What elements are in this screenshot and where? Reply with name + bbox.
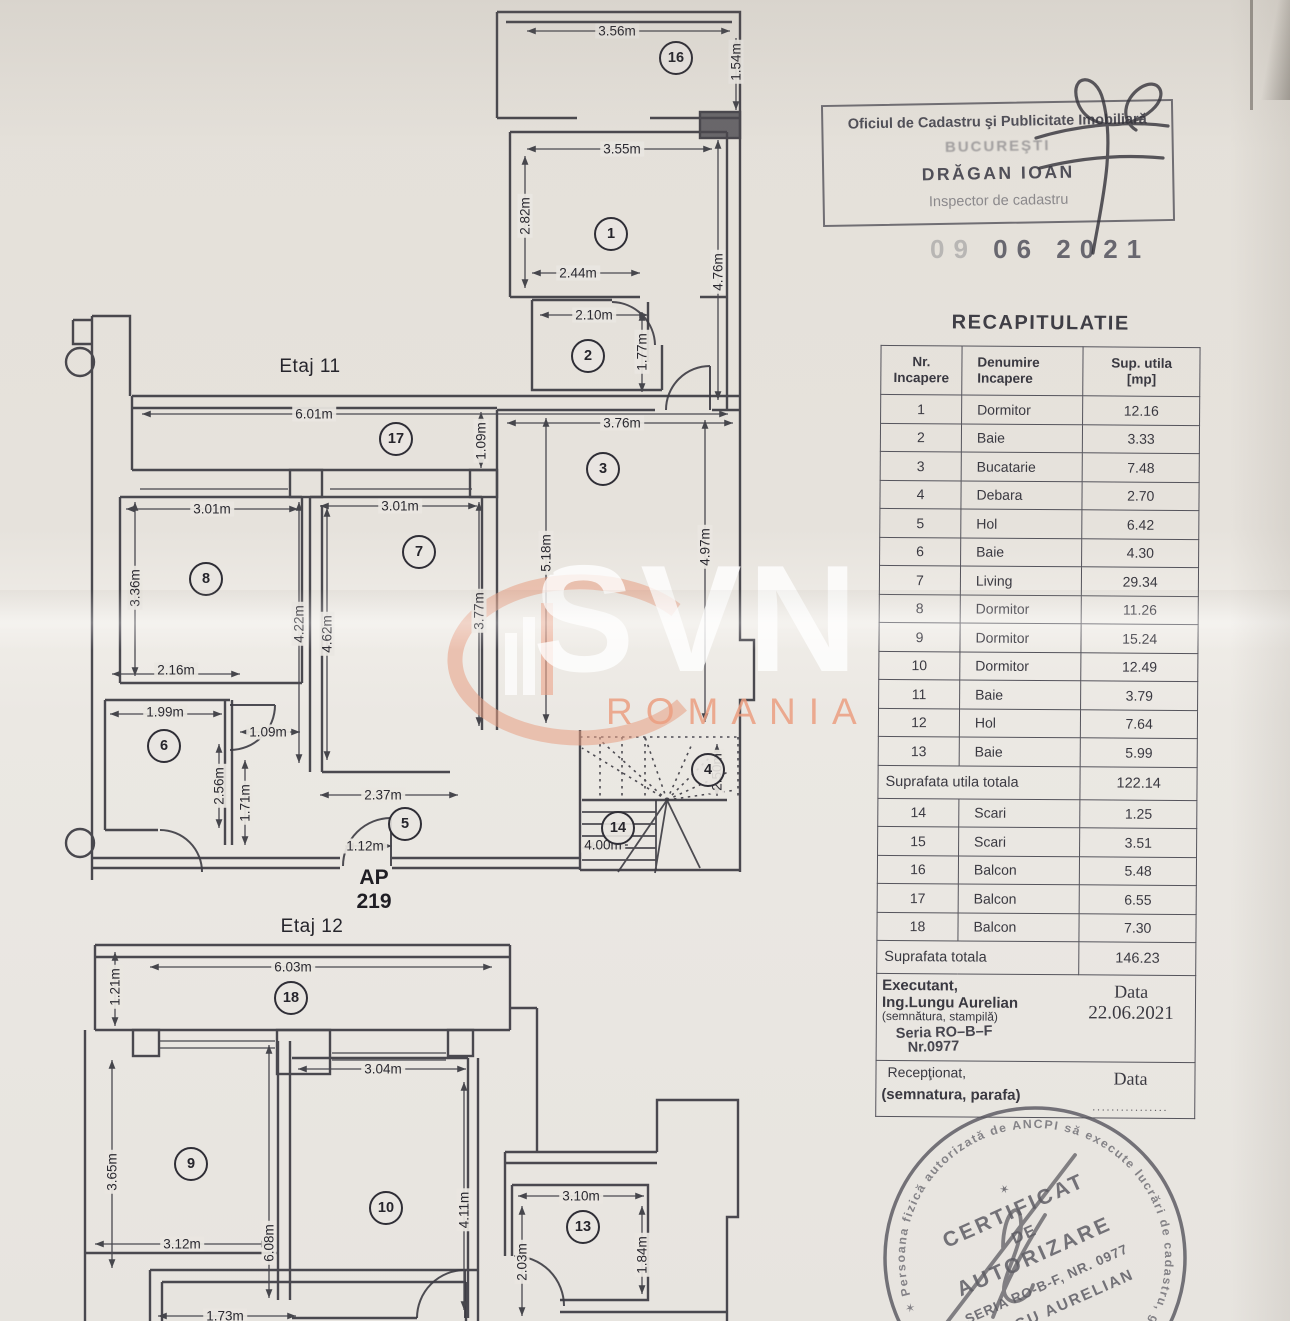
cell-area: 12.49	[1081, 652, 1198, 681]
total-row-label: Suprafata totala	[877, 940, 1080, 974]
table-row: 2Baie3.33	[880, 423, 1199, 454]
cell-nr: 12	[878, 708, 959, 737]
table-row: 4Debara2.70	[880, 480, 1199, 511]
executant-data-label: Data	[1067, 981, 1195, 1003]
dim-label: 3.65m	[105, 1150, 120, 1194]
watermark-svn-text: SVN	[533, 543, 864, 695]
table-row: 6Baie4.30	[880, 537, 1199, 568]
svn-watermark: SVN ROMANIA	[430, 555, 860, 795]
dim-label: 3.10m	[559, 1189, 603, 1204]
cell-nr: 13	[878, 736, 959, 765]
dim-label: 3.12m	[160, 1237, 204, 1252]
cell-nr: 18	[877, 912, 958, 941]
room-number: 9	[174, 1147, 208, 1181]
cell-name: Balcon	[958, 884, 1080, 913]
table-row: 9Dormitor15.24	[879, 622, 1198, 653]
dim-label: 6.01m	[292, 407, 336, 422]
cell-nr: 3	[880, 451, 961, 480]
dim-label: 1.54m	[729, 40, 744, 84]
cell-name: Baie	[961, 423, 1083, 452]
table-row: 15Scari3.51	[878, 826, 1197, 857]
certification-round-stamp: ✶ Persoana fizică autorizată de ANCPI să…	[865, 1095, 1205, 1321]
total-row: Suprafata totala146.23	[877, 940, 1196, 975]
dim-label: 1.73m	[203, 1309, 247, 1321]
col-header-nr: Nr. Incapere	[881, 345, 962, 395]
cell-area: 3.79	[1081, 681, 1198, 710]
executant-title: Executant,	[882, 977, 1067, 995]
subtotal-row: Suprafata utila totala122.14	[878, 765, 1197, 800]
cell-nr: 7	[879, 565, 960, 594]
receptionat-note: (semnatura, parafa)	[881, 1086, 1066, 1104]
cell-name: Scari	[958, 827, 1080, 856]
cell-area: 7.48	[1083, 453, 1200, 482]
window-lines	[140, 489, 472, 1060]
scanned-floorplan-document: SVN ROMANIA 3.56m1.54m3.55m2.82m2.44m4.7…	[0, 0, 1290, 1321]
table-row: 10Dormitor12.49	[879, 651, 1198, 682]
dim-label: 3.76m	[600, 416, 644, 431]
table-row: 5Hol6.42	[880, 508, 1199, 539]
table-row: 18Balcon7.30	[877, 912, 1196, 943]
dim-label: 6.08m	[262, 1221, 277, 1265]
dim-label: 1.09m	[474, 419, 489, 463]
cell-nr: 6	[880, 537, 961, 566]
dim-label: 4.62m	[320, 612, 335, 656]
cell-name: Dormitor	[960, 651, 1082, 680]
etaj12-walls	[85, 945, 738, 1321]
receptionat-box: Recepţionat, (semnatura, parafa) Data ..…	[875, 1061, 1195, 1119]
recap-header-row: Nr. Incapere Denumire Incapere Sup. util…	[881, 345, 1200, 396]
cell-name: Dormitor	[960, 623, 1082, 652]
watermark-romania-text: ROMANIA	[606, 691, 870, 733]
dim-label: 3.04m	[361, 1062, 405, 1077]
room-number: 17	[379, 422, 413, 456]
cell-nr: 14	[878, 798, 959, 827]
cell-name: Balcon	[958, 855, 1080, 884]
table-row: 17Balcon6.55	[877, 883, 1196, 914]
dim-label: 2.56m	[212, 764, 227, 808]
dim-label: 2.16m	[154, 663, 198, 678]
paper-edge-line	[1250, 0, 1253, 110]
recap-title: RECAPITULATIE	[881, 311, 1201, 336]
dim-label: 1.21m	[108, 965, 123, 1009]
dim-label: 2.37m	[361, 788, 405, 803]
recap-table: Nr. Incapere Denumire Incapere Sup. util…	[876, 345, 1200, 976]
cell-nr: 5	[880, 508, 961, 537]
executant-data-value: 22.06.2021	[1067, 1002, 1195, 1025]
cell-name: Hol	[959, 708, 1081, 737]
receptionat-title: Recepţionat,	[881, 1064, 1066, 1081]
cell-name: Dormitor	[960, 594, 1082, 623]
cell-name: Bucatarie	[961, 452, 1083, 481]
cell-nr: 9	[879, 622, 960, 651]
cell-area: 5.48	[1080, 856, 1197, 885]
dim-label: 3.01m	[378, 499, 422, 514]
cell-nr: 11	[879, 679, 960, 708]
cell-area: 11.26	[1082, 595, 1199, 624]
cell-area: 4.30	[1082, 538, 1199, 567]
col-header-denumire: Denumire Incapere	[962, 346, 1084, 396]
cell-nr: 15	[878, 826, 959, 855]
table-row: 16Balcon5.48	[877, 855, 1196, 886]
executant-nr: Nr.0977	[907, 1035, 1067, 1055]
recapitulatie-section: RECAPITULATIE Nr. Incapere Denumire Inca…	[875, 311, 1201, 1119]
dim-label: 2.44m	[556, 266, 600, 281]
cell-area: 6.55	[1080, 885, 1197, 914]
cell-area: 1.25	[1080, 799, 1197, 828]
room-number: 13	[566, 1210, 600, 1244]
subtotal-row-value: 122.14	[1080, 766, 1197, 800]
room-number: 10	[369, 1191, 403, 1225]
cell-area: 12.16	[1083, 396, 1200, 425]
floor-label: Etaj 12	[281, 916, 344, 938]
room-number: 3	[586, 452, 620, 486]
cell-name: Hol	[961, 509, 1083, 538]
cell-nr: 4	[880, 480, 961, 509]
cell-area: 7.64	[1081, 709, 1198, 738]
dim-label: 1.77m	[635, 330, 650, 374]
cell-area: 6.42	[1082, 510, 1199, 539]
table-row: 7Living29.34	[879, 565, 1198, 596]
table-row: 14Scari1.25	[878, 798, 1197, 829]
receptionat-data-label: Data	[1067, 1068, 1195, 1090]
dim-label: 4.00m	[581, 838, 625, 853]
dim-label: 1.99m	[143, 705, 187, 720]
floor-label: Etaj 11	[279, 356, 340, 378]
dim-label: 2.10m	[572, 308, 616, 323]
room-number: 2	[571, 339, 605, 373]
receptionat-dots: ................	[1066, 1101, 1194, 1114]
dim-label: 6.03m	[271, 960, 315, 975]
room-number: 1	[594, 217, 628, 251]
cell-area: 5.99	[1081, 738, 1198, 767]
cell-name: Baie	[960, 680, 1082, 709]
room-number: 6	[147, 729, 181, 763]
dim-label: 4.11m	[457, 1189, 472, 1232]
dim-label: 2.03m	[515, 1240, 530, 1284]
dim-label: 1.71m	[238, 781, 253, 825]
dim-label: 3.55m	[600, 142, 644, 157]
dim-label: 3.56m	[595, 24, 639, 39]
cell-nr: 1	[881, 394, 962, 423]
table-row: 8Dormitor11.26	[879, 594, 1198, 625]
scan-shadow-right	[1230, 0, 1290, 1321]
dim-label: 2.82m	[518, 194, 533, 238]
dim-label: 4.22m	[292, 602, 307, 646]
stamp-star: ✶	[997, 1181, 1012, 1198]
dim-label: 3.01m	[190, 502, 234, 517]
cell-area: 7.30	[1079, 913, 1196, 942]
col-header-sup: Sup. utila [mp]	[1083, 347, 1200, 397]
room-number: 16	[659, 41, 693, 75]
dim-label: 4.76m	[711, 250, 726, 294]
total-row-value: 146.23	[1079, 942, 1196, 976]
table-row: 12Hol7.64	[878, 708, 1197, 739]
scan-edge-corner	[1254, 0, 1290, 100]
cell-name: Debara	[961, 480, 1083, 509]
cell-nr: 10	[879, 651, 960, 680]
cell-nr: 16	[877, 855, 958, 884]
apartment-number-label: AP 219	[356, 866, 391, 914]
cell-nr: 8	[879, 594, 960, 623]
room-number: 18	[274, 981, 308, 1015]
cell-name: Baie	[959, 737, 1081, 766]
table-row: 1Dormitor12.16	[881, 394, 1200, 425]
dim-label: 1.84m	[635, 1233, 650, 1277]
cell-area: 3.51	[1080, 828, 1197, 857]
executant-box: Executant, Ing.Lungu Aurelian (semnătura…	[876, 974, 1197, 1063]
dim-label: 3.36m	[128, 566, 143, 610]
room-number: 14	[601, 811, 635, 845]
cell-area: 2.70	[1082, 481, 1199, 510]
table-row: 3Bucatarie7.48	[880, 451, 1199, 482]
cell-nr: 17	[877, 883, 958, 912]
cell-area: 15.24	[1081, 624, 1198, 653]
cell-name: Scari	[959, 798, 1081, 827]
table-row: 11Baie3.79	[879, 679, 1198, 710]
table-row: 13Baie5.99	[878, 736, 1197, 767]
room-number: 5	[388, 807, 422, 841]
cell-name: Dormitor	[962, 395, 1084, 424]
cell-area: 29.34	[1082, 567, 1199, 596]
dim-label: 1.12m	[343, 839, 387, 854]
cell-name: Living	[960, 566, 1082, 595]
recap-table-body: 1Dormitor12.162Baie3.333Bucatarie7.484De…	[877, 394, 1200, 975]
cell-name: Baie	[961, 537, 1083, 566]
cell-area: 3.33	[1083, 424, 1200, 453]
inspector-signature	[1015, 45, 1195, 275]
room-number: 8	[189, 562, 223, 596]
dim-label: 1.09m	[246, 725, 290, 740]
door-arcs	[160, 302, 710, 1318]
cell-name: Balcon	[958, 912, 1080, 941]
cell-nr: 2	[880, 423, 961, 452]
subtotal-row-label: Suprafata utila totala	[878, 765, 1081, 799]
